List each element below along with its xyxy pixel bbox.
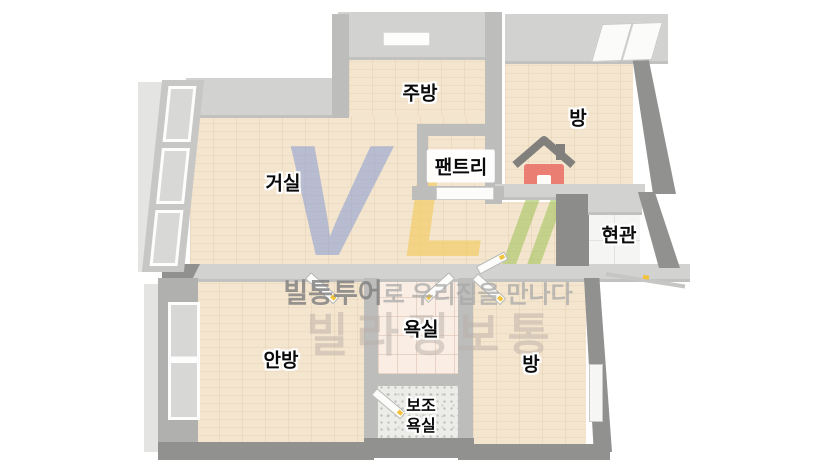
entrance-shoe-closet	[556, 194, 589, 266]
room-top-right-right-wall	[630, 58, 676, 194]
aux-bathroom-label: 보조 욕실	[406, 397, 435, 437]
room-bottom-right-label: 방	[522, 350, 539, 377]
aux-bathroom-label-line1: 보조	[406, 398, 435, 415]
pantry-top-wall	[417, 124, 497, 136]
living-label: 거실	[266, 169, 301, 196]
master-bedroom-label: 안방	[264, 346, 299, 373]
pantry-label: 팬트리	[427, 150, 495, 183]
kitchen-ceiling-vent	[383, 32, 430, 46]
master-window	[168, 302, 200, 420]
room-top-right-closet	[591, 22, 663, 62]
window-pane	[150, 210, 184, 266]
room-bottom-right-wall-panel	[589, 364, 603, 422]
room-top-right-label: 방	[569, 104, 586, 131]
entrance-top-wall	[588, 192, 642, 215]
kitchen-left-wall	[332, 14, 349, 118]
entrance-right-wall	[638, 192, 680, 268]
living-top-wall	[186, 78, 332, 118]
bath-aux-divider-wall	[364, 374, 466, 386]
window-pane	[156, 148, 190, 204]
aux-bathroom-label-line2: 욕실	[406, 418, 435, 435]
kitchen-label: 주방	[403, 79, 438, 106]
master-bath-divider-wall	[364, 278, 378, 450]
entrance-label: 현관	[602, 221, 637, 248]
bottom-wall-right	[458, 444, 610, 460]
pantry-window-cabinet	[436, 187, 494, 200]
bottom-wall-left	[158, 442, 374, 460]
bath-room-divider-wall	[458, 278, 473, 450]
window-pane	[163, 86, 197, 142]
bathroom-label: 욕실	[404, 315, 439, 342]
floorplan-canvas: V L 빌통	[0, 0, 840, 472]
